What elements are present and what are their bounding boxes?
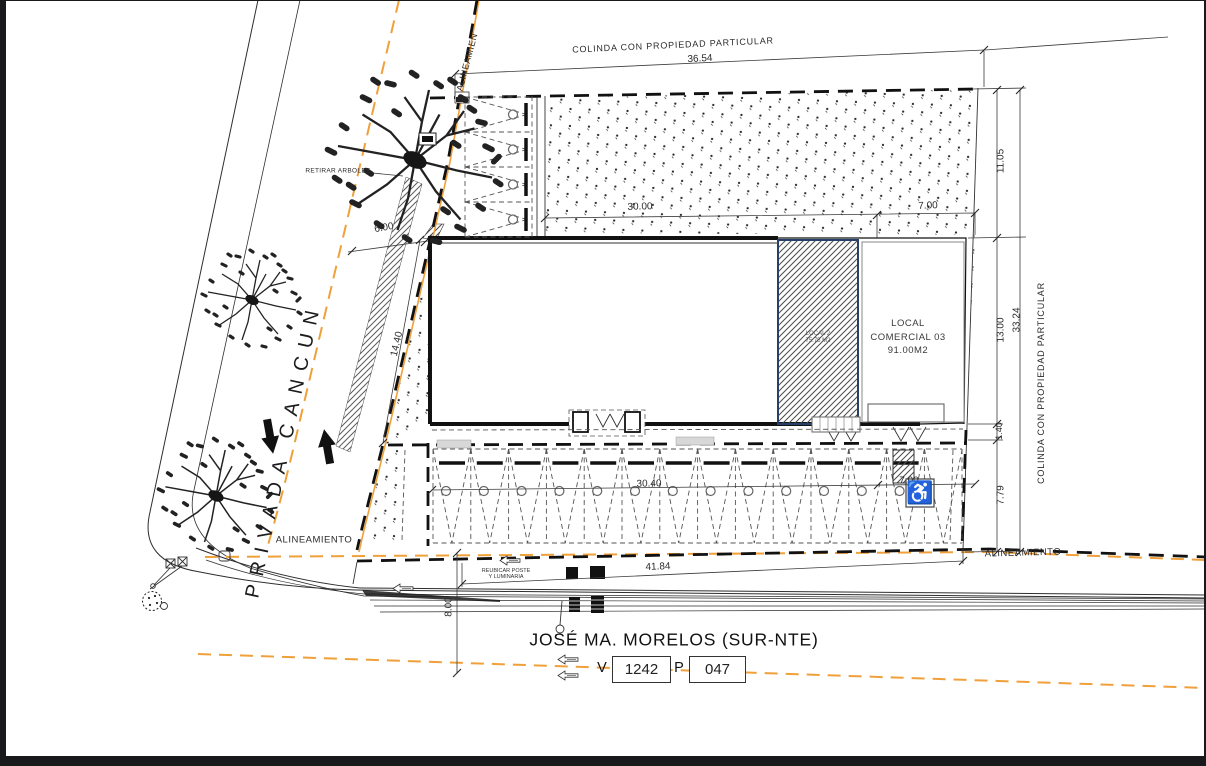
- traffic-arrow-north: [315, 428, 339, 466]
- local-3-title: LOCAL: [870, 317, 945, 331]
- road-plate-p-label: P: [674, 660, 684, 676]
- pole-hatch-1: [569, 597, 580, 612]
- site-plan-drawing: COLINDA CON PROPIEDAD PARTICULAR 36.54 A…: [0, 0, 1206, 766]
- note-relocate-pole-line2: Y LUMINARIA: [482, 574, 531, 580]
- door-assembly-center: [569, 410, 645, 436]
- tree-tag: [419, 133, 436, 145]
- dim-right-small: 1.40: [994, 422, 1004, 440]
- dim-top: 36.54: [687, 53, 713, 65]
- street-name-morelos: JOSÉ MA. MORELOS (SUR-NTE): [529, 630, 818, 651]
- alignment-label-right: ALINEAMIENTO: [985, 546, 1062, 559]
- dim-right-upper: 11.05: [996, 149, 1007, 173]
- note-relocate-pole: REUBICAR POSTE Y LUMINARIA: [482, 568, 531, 580]
- boundary-label-right: COLINDA CON PROPIEDAD PARTICULAR: [1036, 282, 1046, 484]
- road-plate-p-box: 047: [689, 656, 746, 683]
- tree-large: [328, 73, 501, 243]
- walkway: [388, 429, 965, 448]
- dim-right-lower: 7.79: [996, 485, 1007, 504]
- viewer-edge-left: [0, 0, 6, 766]
- sidewalk-strip: [537, 96, 545, 238]
- local2-entry-detail: [812, 417, 860, 432]
- road-plate-v-label: V: [597, 660, 607, 676]
- street-objects: [556, 566, 605, 633]
- dim-right-mid: 13.00: [996, 317, 1007, 342]
- local-2-title: LOCAL 2: [805, 331, 830, 338]
- corner-objects: [143, 551, 231, 611]
- alignment-label-left: ALINEAMIENTO: [276, 535, 353, 546]
- parking-row-top-left: [465, 96, 532, 237]
- dim-building-top-right: 7.00: [918, 200, 938, 212]
- local-3-label: LOCAL COMERCIAL 03 91.00M2: [870, 317, 945, 358]
- dim-right-total: 33.24: [1012, 307, 1023, 332]
- local-2-label: LOCAL 2 75.75 M2: [805, 331, 830, 345]
- local-3-subtitle: COMERCIAL 03: [870, 330, 945, 344]
- wheelchair-icon: ♿: [906, 480, 933, 506]
- pole-hatch-2: [591, 596, 604, 613]
- parking-row-bottom: [433, 449, 962, 543]
- dim-street-half: 8.00: [444, 597, 455, 616]
- site-plan-linework: [0, 0, 1206, 766]
- road-plate-p-value: 047: [705, 661, 730, 678]
- dim-parking-row: 30.40: [636, 478, 661, 489]
- note-remove-trees: RETIRAR ARBOLES: [305, 168, 370, 175]
- tree-mid: [202, 250, 301, 347]
- viewer-edge-bottom: [0, 756, 1206, 766]
- local-2-area: 75.75 M2: [805, 338, 830, 345]
- viewer-edge-top: [0, 0, 1206, 1]
- dim-building-top-left: 30.00: [627, 201, 652, 213]
- road-plate-v-box: 1242: [612, 656, 671, 683]
- local-3-area: 91.00M2: [870, 344, 945, 358]
- road-plate-v-value: 1242: [625, 661, 658, 678]
- dim-frontage: 41.84: [645, 561, 670, 573]
